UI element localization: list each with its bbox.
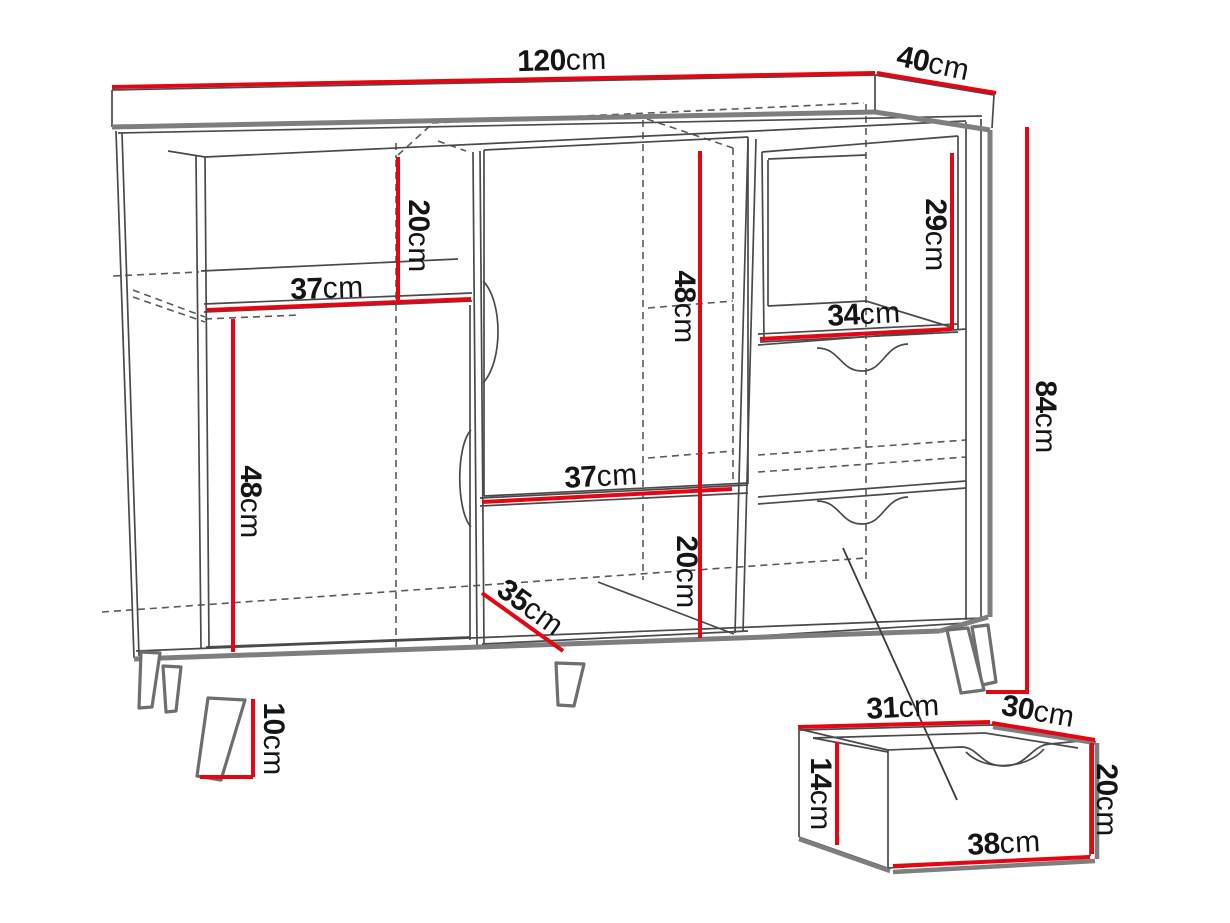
dim-label-leg-height: 10cm <box>258 702 288 775</box>
dimension-diagram: 120cm 40cm 84cm 20cm 37cm 48cm 48cm 37cm… <box>0 0 1230 923</box>
dim-label-right-niche-height: 29cm <box>920 198 950 271</box>
drawer-detail-lines <box>799 725 1097 872</box>
dim-value: 37 <box>563 460 597 495</box>
dim-value: 48 <box>234 465 267 497</box>
dim-label-drawer-front-width: 38cm <box>967 827 1042 861</box>
dim-value: 20 <box>670 535 703 567</box>
dim-label-left-door-height: 48cm <box>235 465 265 538</box>
drawer-leader-line <box>843 548 957 800</box>
dim-label-drawer-side-height: 14cm <box>805 757 835 830</box>
dim-label-middle-door-height: 48cm <box>669 270 699 343</box>
cabinet-shadow-edges <box>112 112 990 659</box>
dim-value: 20 <box>402 199 435 231</box>
dim-unit: cm <box>257 735 290 776</box>
dim-label-drawer-front-height: 20cm <box>1091 763 1121 836</box>
dim-value: 37 <box>290 272 324 306</box>
dim-unit: cm <box>234 498 267 539</box>
dim-label-cabinet-width: 120cm <box>517 45 607 77</box>
dim-unit: cm <box>668 303 701 344</box>
dim-value: 120 <box>517 44 566 78</box>
dim-label-right-niche-width: 34cm <box>827 298 902 332</box>
dim-unit: cm <box>898 689 941 724</box>
dim-unit: cm <box>322 271 364 305</box>
dim-unit: cm <box>859 296 902 331</box>
dim-value: 34 <box>826 298 860 333</box>
dim-unit: cm <box>919 231 952 272</box>
dim-label-cabinet-height: 84cm <box>1030 380 1060 453</box>
dim-unit: cm <box>1029 413 1062 454</box>
dim-value: 48 <box>668 270 701 302</box>
dim-label-drawer-inner-width: 31cm <box>866 691 941 725</box>
dim-label-bottom-niche-height: 20cm <box>671 535 701 608</box>
dim-unit: cm <box>670 568 703 609</box>
dim-value: 31 <box>865 691 899 726</box>
dim-value: 29 <box>919 198 952 230</box>
cabinet-body-lines <box>112 75 994 658</box>
dim-value: 38 <box>966 827 1000 862</box>
dim-unit: cm <box>1090 796 1123 837</box>
dim-label-middle-shelf-width: 37cm <box>564 460 639 494</box>
dim-unit: cm <box>804 790 837 831</box>
dim-unit: cm <box>596 458 639 493</box>
dim-label-left-niche-width: 37cm <box>290 273 364 306</box>
dim-unit: cm <box>1031 695 1077 735</box>
dim-label-left-niche-height: 20cm <box>403 199 433 272</box>
dim-unit: cm <box>999 825 1042 860</box>
dim-value: 20 <box>1090 763 1123 795</box>
dim-value: 14 <box>804 757 837 789</box>
dim-value: 84 <box>1029 380 1062 412</box>
dim-value: 10 <box>257 702 290 734</box>
dim-unit: cm <box>402 232 435 273</box>
dim-unit: cm <box>565 43 607 77</box>
